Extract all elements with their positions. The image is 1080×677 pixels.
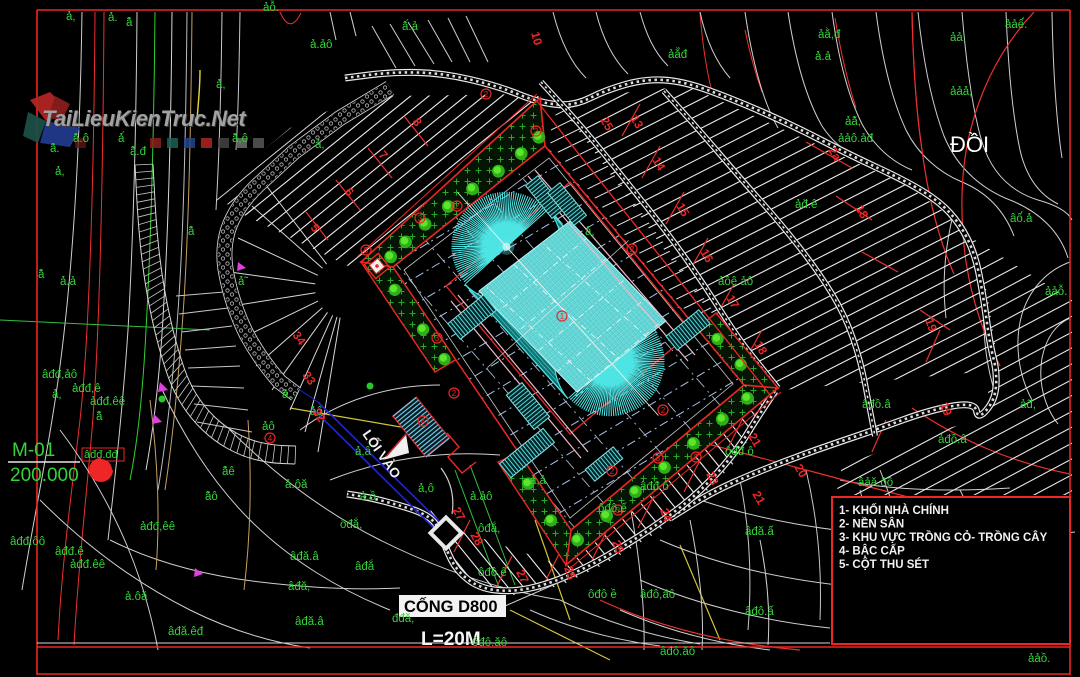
- svg-text:ảđđ.êê: ảđđ.êê: [90, 396, 125, 408]
- svg-text:3: 3: [418, 214, 423, 223]
- svg-text:ảả̃,: ảả̃,: [845, 116, 861, 128]
- svg-text:âđô,ăô: âđô,ăô: [640, 589, 675, 601]
- svg-text:âđồ.â: âđồ.â: [862, 399, 891, 411]
- svg-text:ôđô.ế: ôđô.ế: [478, 567, 507, 579]
- svg-text:TaiLieuKienTruc.Net: TaiLieuKienTruc.Net: [42, 106, 247, 131]
- svg-text:âđđ.ôô: âđđ.ôô: [10, 536, 45, 548]
- svg-text:ả̃ô: ả̃ô: [205, 491, 218, 503]
- svg-text:âđắ: âđắ: [355, 560, 375, 573]
- svg-text:2: 2: [661, 406, 666, 415]
- svg-text:ả̃.ô: ả̃.ô: [73, 133, 89, 145]
- svg-text:ả́ô: ả́ô: [262, 421, 275, 433]
- svg-text:ôđđ́ ô: ôđđ́ ô: [725, 446, 754, 458]
- svg-text:ả́,ả: ả́,ả: [530, 475, 547, 487]
- svg-text:ả́,: ả́,: [216, 79, 226, 91]
- svg-text:ả.ảô: ả.ảô: [470, 491, 492, 503]
- svg-text:ả̂́.ả: ả̂́.ả: [402, 20, 419, 33]
- svg-text:ả́.ả: ả́.ả: [60, 276, 77, 288]
- svg-text:4: 4: [268, 434, 273, 443]
- svg-text:âảă.ôô: âảă.ôô: [858, 477, 893, 489]
- svg-text:ảảả́,: ảảả́,: [950, 86, 972, 98]
- svg-text:ả̃.đ: ả̃.đ: [130, 146, 147, 158]
- svg-text:ả́,: ả́,: [66, 11, 76, 23]
- svg-text:âố́.ả́: âố́.ả́: [1010, 212, 1033, 225]
- svg-text:ôđô.ế: ôđô.ế: [598, 503, 627, 515]
- svg-text:5- CỘT THU SÉT: 5- CỘT THU SÉT: [839, 558, 929, 571]
- svg-text:ảđồ.â: ảđồ.â: [938, 434, 967, 446]
- svg-text:ả́.: ả́.: [108, 12, 118, 24]
- svg-text:2: 2: [455, 202, 460, 211]
- svg-text:ả̃ê: ả̃ê: [222, 466, 235, 478]
- svg-text:ả́́: ả́́: [118, 132, 125, 145]
- svg-text:âđô.ăô: âđô.ăô: [660, 646, 695, 658]
- svg-text:ả̃: ả̃: [38, 269, 45, 281]
- svg-text:âđă.êđ: âđă.êđ: [168, 626, 204, 638]
- svg-text:1- KHỐI NHÀ CHÍNH: 1- KHỐI NHÀ CHÍNH: [839, 503, 949, 517]
- svg-text:âđđ,ảô: âđđ,ảô: [42, 369, 77, 381]
- svg-text:ả̃,: ả̃,: [282, 389, 292, 401]
- svg-text:3- KHU VỰC TRỒNG CỎ- TRỒNG CÂY: 3- KHU VỰC TRỒNG CỎ- TRỒNG CÂY: [839, 531, 1048, 544]
- svg-text:ả́,: ả́,: [52, 389, 62, 401]
- svg-text:2: 2: [534, 127, 539, 136]
- svg-text:2- NỀN SÂN: 2- NỀN SÂN: [839, 518, 904, 531]
- svg-text:ả̃: ả̃: [188, 226, 195, 238]
- svg-text:ảảồ.: ảảồ.: [1028, 653, 1050, 665]
- svg-text:âđă.ấ: âđă.ấ: [745, 526, 774, 538]
- svg-text:ả.ảô: ả.ảô: [310, 39, 332, 51]
- svg-text:đđă,: đđă,: [392, 613, 414, 625]
- svg-text:âđđ́ ố: âđđ́ ố: [640, 481, 669, 493]
- svg-text:2: 2: [694, 453, 699, 462]
- svg-text:3: 3: [656, 454, 661, 463]
- svg-text:2: 2: [630, 245, 635, 254]
- svg-text:4- BẬC CẤP: 4- BẬC CẤP: [839, 545, 905, 558]
- svg-text:âđă,: âđă,: [288, 581, 310, 593]
- svg-text:ả́,: ả́,: [585, 226, 595, 238]
- svg-text:âđđ.đđ: âđđ.đđ: [84, 449, 119, 461]
- svg-text:âđă.â: âđă.â: [295, 616, 324, 628]
- svg-text:ảđ̀.ê: ảđ̀.ê: [795, 199, 817, 211]
- svg-text:ả.ôă: ả.ôă: [285, 479, 308, 491]
- svg-text:ả.ồ: ả.ồ: [360, 491, 376, 503]
- svg-text:ả́,: ả́,: [315, 139, 325, 151]
- svg-text:âđă.â: âđă.â: [290, 551, 319, 563]
- svg-text:ôđắ,: ôđắ,: [340, 518, 362, 531]
- svg-text:ảảô.ảđ: ảảô.ảđ: [838, 133, 874, 145]
- svg-text:ôđô.ăô: ôđô.ăô: [472, 637, 507, 649]
- svg-text:ả̃,ô: ả̃,ô: [232, 133, 248, 145]
- svg-text:âđô.ấ: âđô.ấ: [745, 606, 774, 618]
- svg-text:ả̃.: ả̃.: [50, 143, 60, 155]
- svg-text:5: 5: [364, 246, 369, 255]
- svg-text:ả́,ô: ả́,ô: [418, 483, 434, 495]
- svg-text:3: 3: [435, 334, 440, 343]
- svg-text:4: 4: [421, 417, 426, 426]
- svg-text:200.000: 200.000: [10, 465, 79, 486]
- svg-text:ảảế́.: ảảế́.: [1005, 18, 1027, 31]
- svg-text:ảằ,đ: ảằ,đ: [818, 28, 841, 41]
- svg-text:ảảỗ.: ảảỗ.: [1045, 285, 1067, 298]
- svg-text:ảả.: ảả.: [950, 32, 966, 44]
- svg-text:ảỗ.: ảỗ.: [263, 1, 279, 14]
- svg-text:ảđđ.êê: ảđđ.êê: [70, 559, 105, 571]
- svg-text:ôđô ề: ôđô ề: [588, 589, 617, 601]
- svg-text:2: 2: [452, 389, 457, 398]
- svg-text:M-01: M-01: [12, 440, 55, 461]
- svg-text:ả̃: ả̃: [96, 411, 103, 423]
- svg-text:1: 1: [560, 312, 565, 321]
- svg-text:ảđ̃,: ảđ̃,: [1020, 399, 1036, 411]
- svg-text:âđđ.ê: âđđ.ê: [55, 546, 84, 558]
- svg-text:2: 2: [610, 467, 615, 476]
- svg-text:ảồê ảô: ảồê ảô: [718, 276, 753, 288]
- svg-text:CỐNG D800: CỐNG D800: [404, 596, 498, 616]
- svg-text:ảđđ,êê: ảđđ,êê: [140, 521, 175, 533]
- svg-text:ả̃: ả̃: [126, 17, 133, 29]
- svg-text:ảằ̀đ: ảằ̀đ: [668, 48, 688, 61]
- svg-text:ả̀.ả: ả̀.ả: [815, 51, 832, 63]
- svg-text:ả́,: ả́,: [55, 166, 65, 178]
- svg-text:ĐỒI: ĐỒI: [950, 132, 989, 157]
- svg-text:ả́,â: ả́,â: [355, 446, 372, 458]
- svg-text:ảđđ,ê: ảđđ,ê: [72, 383, 101, 395]
- svg-text:2: 2: [484, 90, 489, 99]
- svg-text:ả.ôă: ả.ôă: [125, 591, 148, 603]
